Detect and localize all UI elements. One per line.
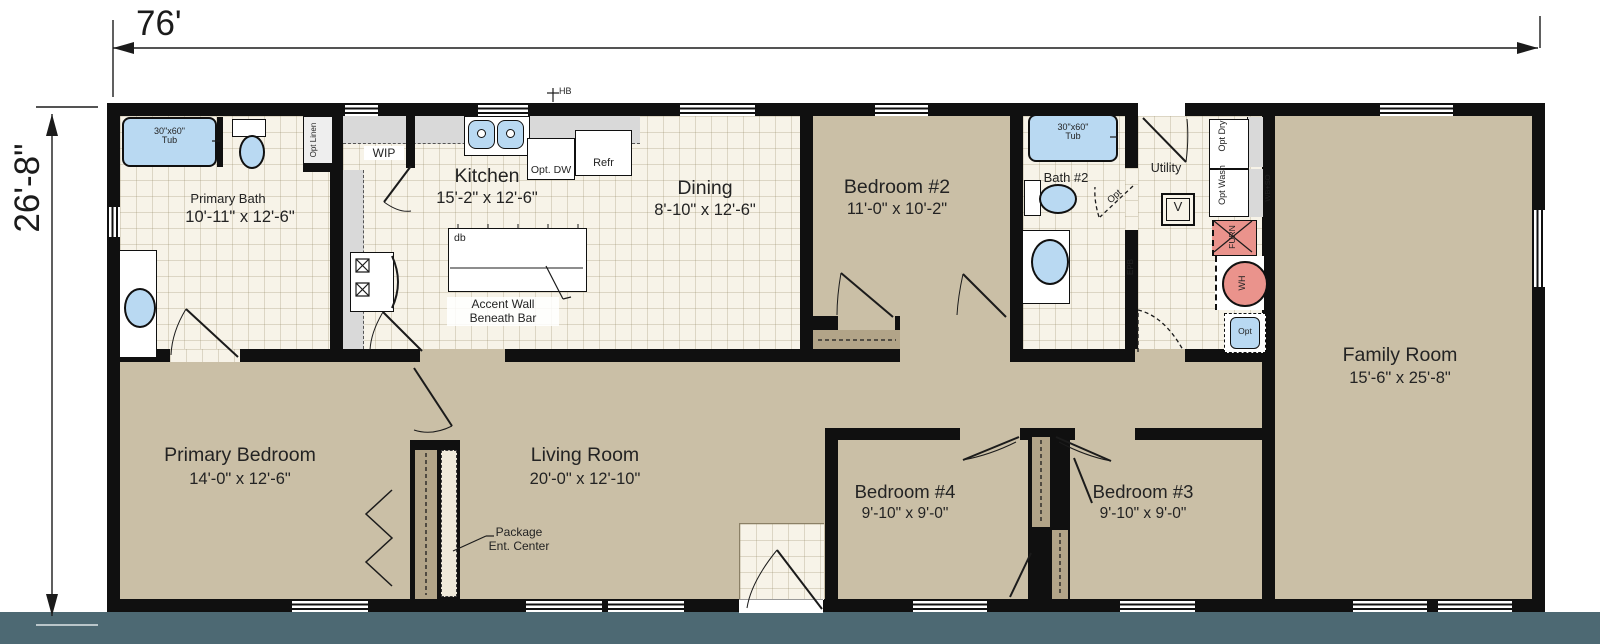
floor-hallway bbox=[825, 362, 1262, 428]
window-dining bbox=[680, 103, 755, 116]
floor-hall-bedroom2 bbox=[900, 316, 1010, 362]
room-dims-living: 20'-0" x 12'-10" bbox=[470, 470, 700, 489]
room-dims-dining: 8'-10" x 12'-6" bbox=[610, 201, 800, 220]
window-bedroom2 bbox=[875, 103, 928, 116]
pantry-wall-stub bbox=[406, 116, 415, 168]
furnace-label: FURN bbox=[1228, 216, 1242, 258]
package-line1: Package bbox=[474, 525, 564, 539]
furnace: FURN bbox=[1212, 220, 1257, 256]
island-db-label: db bbox=[454, 232, 466, 244]
kitchen-range bbox=[350, 252, 394, 312]
vent-box: V bbox=[1161, 193, 1195, 226]
room-dims-bedroom3: 9'-10" x 9'-0" bbox=[1063, 505, 1223, 523]
bath2-sink bbox=[1031, 239, 1069, 285]
door-opening-utility-rear bbox=[1138, 103, 1185, 116]
room-label-bedroom3: Bedroom #3 bbox=[1063, 481, 1223, 502]
room-dims-bedroom4: 9'-10" x 9'-0" bbox=[825, 505, 985, 523]
package-ent-center-unit bbox=[441, 450, 457, 597]
primary-tub-wall bbox=[217, 117, 223, 167]
overall-height-dim: 26'-8" bbox=[8, 129, 48, 247]
door-opening-front-entry bbox=[739, 599, 823, 613]
opt-linen-label: Opt Linen bbox=[310, 118, 326, 162]
primary-tub-label: Tub bbox=[124, 136, 215, 145]
floor-bedroom2-doorways bbox=[838, 316, 895, 330]
room-label-family: Family Room bbox=[1270, 344, 1530, 366]
window-living-1 bbox=[526, 599, 602, 612]
window-kitchen-sink bbox=[478, 103, 528, 116]
window-living-2 bbox=[608, 599, 684, 612]
sink-drain-left bbox=[477, 129, 486, 138]
overall-width-dim: 76' bbox=[136, 4, 182, 44]
window-family-right bbox=[1532, 210, 1545, 287]
room-label-utility: Utility bbox=[1126, 161, 1206, 175]
accent-wall-line1: Accent Wall bbox=[447, 297, 559, 311]
room-label-living: Living Room bbox=[470, 444, 700, 466]
window-family-bottom-2 bbox=[1438, 599, 1512, 612]
bath2-tub-label: Tub bbox=[1030, 132, 1116, 141]
bedroom2-closet bbox=[813, 330, 900, 349]
sink-drain-right bbox=[506, 129, 515, 138]
bath2-toilet-bowl bbox=[1039, 184, 1077, 214]
water-heater: WH bbox=[1222, 261, 1268, 307]
bottom-teal-band bbox=[0, 612, 1600, 644]
opt-dryer: Opt Dry bbox=[1209, 119, 1249, 169]
window-family-bottom-1 bbox=[1353, 599, 1427, 612]
bedroom3-door-gap bbox=[1075, 428, 1135, 440]
window-bedroom3 bbox=[1120, 599, 1195, 612]
window-bedroom4 bbox=[913, 599, 987, 612]
window-family-top bbox=[1380, 103, 1453, 116]
marriage-gap-hall bbox=[420, 349, 505, 362]
wb-so-label: WB+SO bbox=[1264, 165, 1276, 211]
floor-hall-primary bbox=[410, 362, 460, 440]
room-label-bedroom2: Bedroom #2 bbox=[797, 176, 997, 198]
epb-label: EPB bbox=[1127, 247, 1139, 287]
room-dims-bedroom2: 11'-0" x 10'-2" bbox=[797, 200, 997, 219]
floor-bath2-doorway bbox=[1125, 168, 1138, 230]
hose-bib-label: HB bbox=[559, 86, 583, 97]
opt-linen-cabinet: Opt Linen bbox=[303, 116, 333, 164]
accent-wall-note: Accent Wall Beneath Bar bbox=[447, 297, 559, 326]
wip-label: WIP bbox=[364, 146, 404, 160]
primary-tub: 30"x60" Tub bbox=[122, 117, 217, 167]
window-kitchen-left bbox=[345, 103, 378, 116]
room-dims-family: 15'-6" x 25'-8" bbox=[1270, 369, 1530, 388]
bath2-tub: 30"x60" Tub bbox=[1028, 114, 1118, 162]
opt-utility-sink-label: Opt bbox=[1225, 327, 1265, 336]
water-heater-label: WH bbox=[1238, 263, 1252, 303]
room-dims-primary-bath: 10'-11" x 12'-6" bbox=[140, 208, 340, 227]
room-label-bath2: Bath #2 bbox=[1016, 171, 1116, 186]
marriage-gap-utility bbox=[1135, 349, 1185, 362]
floor-plan: 30"x60" Tub Opt Linen Opt. DW Refr db 30… bbox=[0, 0, 1600, 644]
room-label-bedroom4: Bedroom #4 bbox=[825, 481, 985, 502]
kitchen-island: db bbox=[448, 228, 587, 292]
room-label-dining: Dining bbox=[610, 177, 800, 199]
window-primary-bath-left bbox=[107, 207, 120, 237]
package-line2: Ent. Center bbox=[474, 539, 564, 553]
primary-toilet-bowl bbox=[239, 135, 265, 169]
opt-washer-label: Opt Wash bbox=[1218, 165, 1240, 205]
room-label-primary-bedroom: Primary Bedroom bbox=[130, 444, 350, 466]
room-label-kitchen: Kitchen bbox=[397, 165, 577, 187]
room-label-primary-bath: Primary Bath bbox=[128, 192, 328, 207]
utility-shelf-1 bbox=[1247, 117, 1263, 167]
opt-dryer-label: Opt Dry bbox=[1218, 116, 1240, 156]
package-ent-center-note: Package Ent. Center bbox=[474, 525, 564, 554]
opt-utility-sink-box: Opt bbox=[1224, 313, 1266, 353]
room-dims-kitchen: 15'-2" x 12'-6" bbox=[397, 189, 577, 208]
primary-bath-door-gap bbox=[170, 349, 240, 362]
window-primary-bedroom bbox=[292, 599, 368, 612]
refrigerator-label: Refr bbox=[576, 158, 631, 170]
room-dims-primary-bedroom: 14'-0" x 12'-6" bbox=[130, 470, 350, 489]
utility-shelf-2 bbox=[1247, 169, 1263, 217]
floor-entry bbox=[739, 523, 824, 600]
bedroom4-wardrobe bbox=[1032, 437, 1050, 527]
vent-label: V bbox=[1163, 200, 1193, 215]
accent-wall-line2: Beneath Bar bbox=[447, 311, 559, 325]
bedroom3-wardrobe bbox=[1052, 530, 1068, 599]
bedroom4-door-gap bbox=[960, 428, 1020, 440]
refrigerator: Refr bbox=[575, 130, 632, 176]
kitchen-sink-unit bbox=[464, 116, 530, 156]
opt-washer: Opt Wash bbox=[1209, 169, 1249, 217]
primary-wardrobe bbox=[415, 450, 437, 599]
primary-vanity-sink bbox=[124, 288, 156, 328]
